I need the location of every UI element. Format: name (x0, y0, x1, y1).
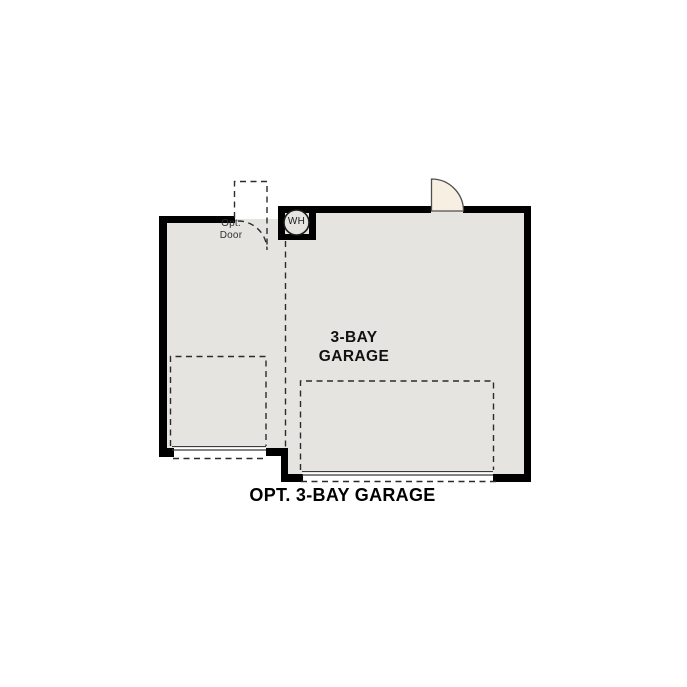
water-heater-label: WH (283, 216, 310, 227)
room-label-line1: 3-BAY (264, 329, 444, 348)
floorplan-canvas: WH Opt. Door 3-BAY GARAGE OPT. 3-BAY GAR… (0, 0, 687, 687)
opt-door-label-line1: Opt. (209, 218, 253, 230)
opt-door-label: Opt. Door (209, 218, 253, 241)
opt-door-label-line2: Door (209, 230, 253, 242)
wall-right (524, 206, 531, 482)
entry-door-swing-icon (432, 179, 464, 211)
room-label-line2: GARAGE (264, 348, 444, 367)
wall-bottom-left-corner (159, 448, 174, 457)
room-label: 3-BAY GARAGE (264, 329, 444, 366)
wall-top-garage-right (463, 206, 531, 213)
plan-caption: OPT. 3-BAY GARAGE (202, 485, 483, 506)
wall-step-bottom (281, 474, 303, 482)
wall-left (159, 216, 167, 457)
